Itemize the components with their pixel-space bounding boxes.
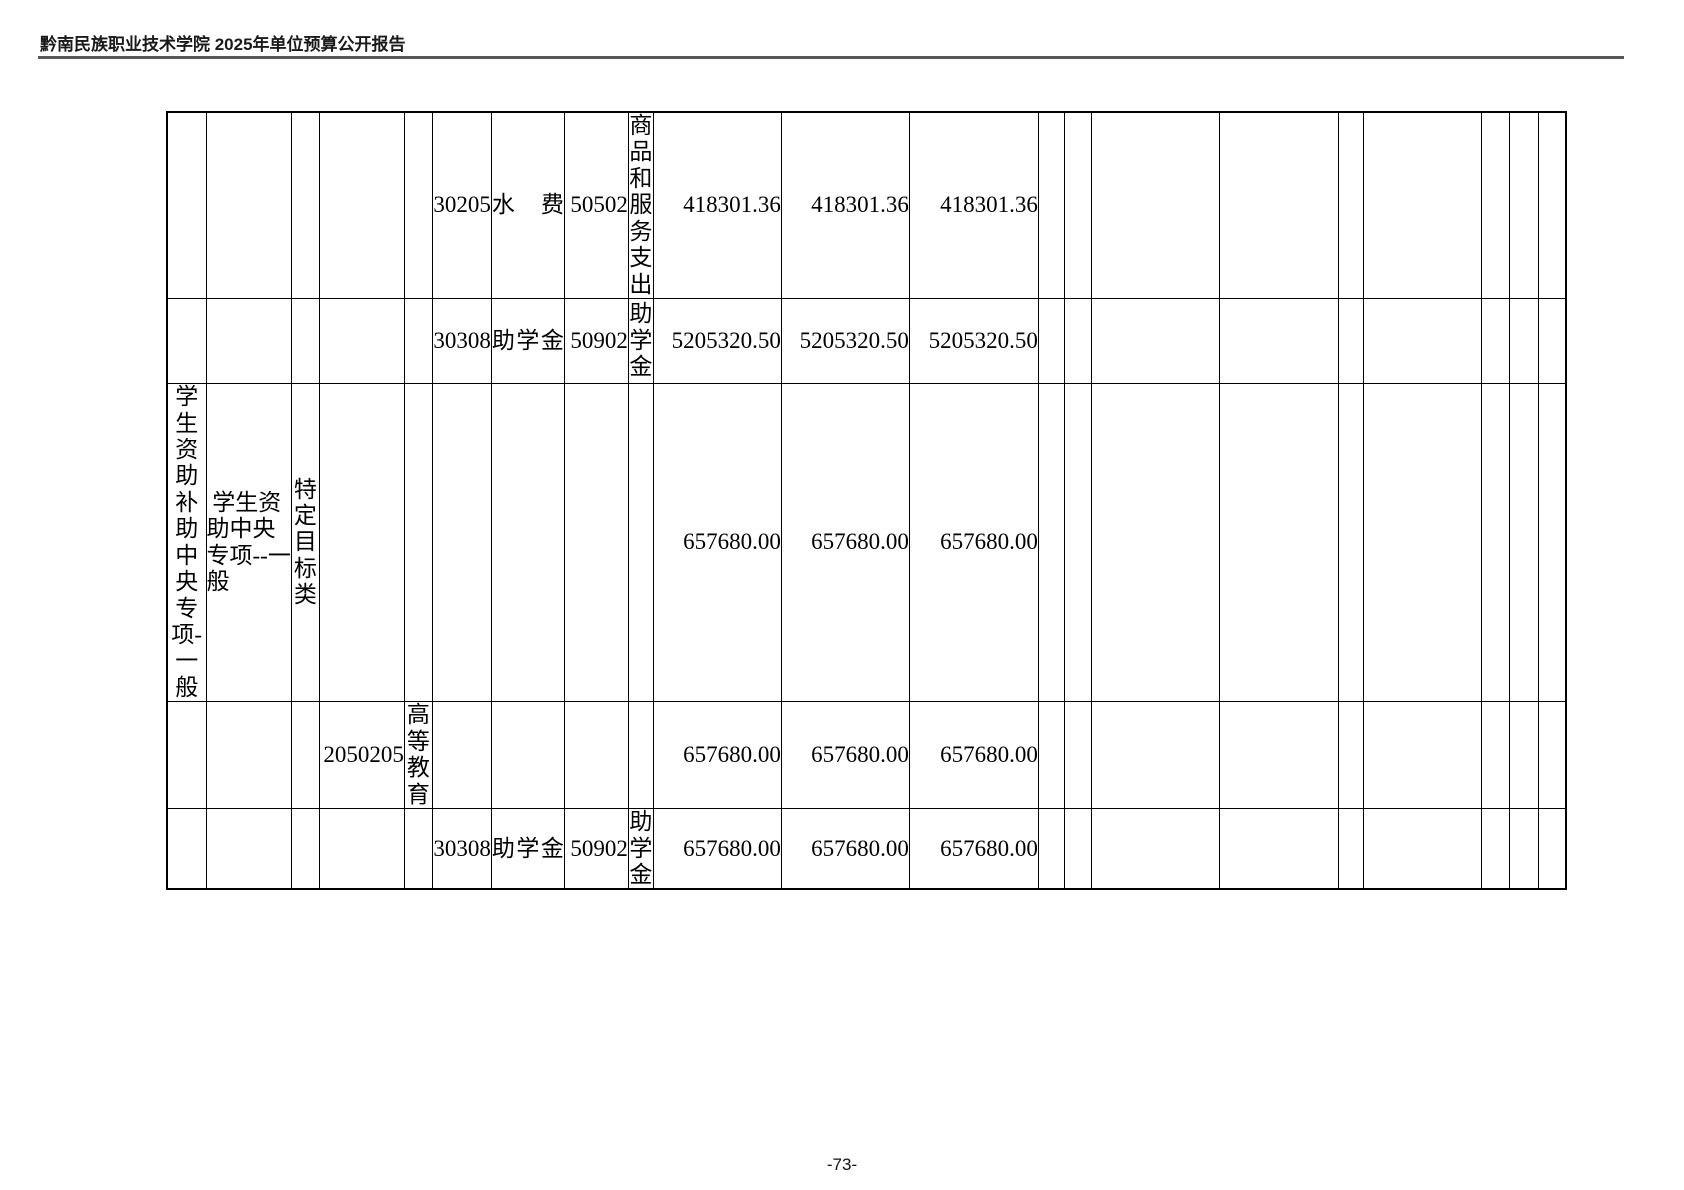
empty-cell <box>1064 299 1091 384</box>
empty-cell <box>1538 702 1566 809</box>
amount-cell: 657680.00 <box>909 702 1038 809</box>
empty-cell <box>1338 809 1363 890</box>
empty-cell <box>1038 299 1064 384</box>
empty-cell <box>1219 809 1338 890</box>
empty-cell <box>167 299 206 384</box>
gov-econ-class-code-cell: 50902 <box>564 299 628 384</box>
amount-cell: 657680.00 <box>653 384 781 702</box>
empty-cell <box>1363 384 1481 702</box>
empty-cell <box>1363 702 1481 809</box>
empty-cell <box>167 112 206 299</box>
empty-cell <box>1038 702 1064 809</box>
empty-cell <box>1363 112 1481 299</box>
amount-cell: 657680.00 <box>909 809 1038 890</box>
empty-cell <box>1091 702 1219 809</box>
empty-cell <box>564 384 628 702</box>
empty-cell <box>1538 384 1566 702</box>
table-row: 30308助学金50902助 学 金5205320.505205320.5052… <box>167 299 1566 384</box>
econ-class-name-cell: 助学金 <box>491 809 564 890</box>
empty-cell <box>404 809 432 890</box>
empty-cell <box>1219 112 1338 299</box>
empty-cell <box>1363 809 1481 890</box>
header-divider-rule <box>38 56 1624 59</box>
empty-cell <box>404 299 432 384</box>
econ-class-name-cell: 水费 <box>491 112 564 299</box>
empty-cell <box>291 702 319 809</box>
document-header-title: 黔南民族职业技术学院 2025年单位预算公开报告 <box>40 30 406 55</box>
empty-cell <box>1481 702 1509 809</box>
empty-cell <box>1091 112 1219 299</box>
table-row: 学 生 资 助 补 助 中 央 专 项- 一 般 学生资 助中央 专项--一 般… <box>167 384 1566 702</box>
amount-cell: 657680.00 <box>909 384 1038 702</box>
empty-cell <box>628 384 653 702</box>
amount-cell: 5205320.50 <box>781 299 909 384</box>
empty-cell <box>1219 299 1338 384</box>
amount-cell: 418301.36 <box>653 112 781 299</box>
empty-cell <box>1038 112 1064 299</box>
empty-cell <box>291 809 319 890</box>
empty-cell <box>1064 384 1091 702</box>
empty-cell <box>167 809 206 890</box>
empty-cell <box>319 299 404 384</box>
empty-cell <box>1509 112 1538 299</box>
amount-cell: 5205320.50 <box>653 299 781 384</box>
empty-cell <box>1538 112 1566 299</box>
project-name-cell: 学生资 助中央 专项--一 般 <box>206 384 291 702</box>
empty-cell <box>1481 384 1509 702</box>
amount-cell: 657680.00 <box>653 702 781 809</box>
empty-cell <box>1509 809 1538 890</box>
table-row: 30205水费50502商 品 和 服 务 支 出418301.36418301… <box>167 112 1566 299</box>
empty-cell <box>1064 112 1091 299</box>
empty-cell <box>1363 299 1481 384</box>
amount-cell: 418301.36 <box>781 112 909 299</box>
empty-cell <box>1091 809 1219 890</box>
empty-cell <box>1481 299 1509 384</box>
empty-cell <box>206 702 291 809</box>
empty-cell <box>1219 384 1338 702</box>
empty-cell <box>1338 112 1363 299</box>
empty-cell <box>1509 702 1538 809</box>
empty-cell <box>1509 384 1538 702</box>
table-row: 2050205高 等 教 育657680.00657680.00657680.0… <box>167 702 1566 809</box>
function-class-code-cell: 2050205 <box>319 702 404 809</box>
gov-econ-class-name-cell: 助 学 金 <box>628 809 653 890</box>
budget-detail-table: 30205水费50502商 品 和 服 务 支 出418301.36418301… <box>166 111 1567 890</box>
empty-cell <box>1509 299 1538 384</box>
empty-cell <box>432 702 491 809</box>
empty-cell <box>1538 299 1566 384</box>
project-type-cell: 特 定 目 标 类 <box>291 384 319 702</box>
amount-cell: 418301.36 <box>909 112 1038 299</box>
empty-cell <box>1338 702 1363 809</box>
empty-cell <box>1481 809 1509 890</box>
empty-cell <box>1338 384 1363 702</box>
empty-cell <box>432 384 491 702</box>
table-body: 30205水费50502商 品 和 服 务 支 出418301.36418301… <box>167 112 1566 889</box>
empty-cell <box>206 809 291 890</box>
empty-cell <box>291 112 319 299</box>
econ-class-code-cell: 30205 <box>432 112 491 299</box>
empty-cell <box>1064 809 1091 890</box>
empty-cell <box>1091 384 1219 702</box>
empty-cell <box>1038 809 1064 890</box>
empty-cell <box>291 299 319 384</box>
amount-cell: 657680.00 <box>653 809 781 890</box>
document-page: 黔南民族职业技术学院 2025年单位预算公开报告 30205水费50502商 品… <box>0 0 1684 1190</box>
empty-cell <box>564 702 628 809</box>
gov-econ-class-code-cell: 50902 <box>564 809 628 890</box>
empty-cell <box>206 299 291 384</box>
amount-cell: 657680.00 <box>781 809 909 890</box>
econ-class-code-cell: 30308 <box>432 809 491 890</box>
empty-cell <box>319 809 404 890</box>
empty-cell <box>319 384 404 702</box>
amount-cell: 657680.00 <box>781 384 909 702</box>
amount-cell: 657680.00 <box>781 702 909 809</box>
empty-cell <box>167 702 206 809</box>
empty-cell <box>1338 299 1363 384</box>
empty-cell <box>1538 809 1566 890</box>
empty-cell <box>1091 299 1219 384</box>
project-group-name-cell: 学 生 资 助 补 助 中 央 专 项- 一 般 <box>167 384 206 702</box>
gov-econ-class-code-cell: 50502 <box>564 112 628 299</box>
empty-cell <box>404 112 432 299</box>
empty-cell <box>206 112 291 299</box>
empty-cell <box>319 112 404 299</box>
empty-cell <box>1219 702 1338 809</box>
empty-cell <box>1481 112 1509 299</box>
amount-cell: 5205320.50 <box>909 299 1038 384</box>
page-number: -73- <box>0 1155 1684 1175</box>
empty-cell <box>628 702 653 809</box>
empty-cell <box>1064 702 1091 809</box>
gov-econ-class-name-cell: 商 品 和 服 务 支 出 <box>628 112 653 299</box>
empty-cell <box>491 384 564 702</box>
gov-econ-class-name-cell: 助 学 金 <box>628 299 653 384</box>
econ-class-code-cell: 30308 <box>432 299 491 384</box>
empty-cell <box>404 384 432 702</box>
function-class-name-cell: 高 等 教 育 <box>404 702 432 809</box>
econ-class-name-cell: 助学金 <box>491 299 564 384</box>
empty-cell <box>1038 384 1064 702</box>
table-row: 30308助学金50902助 学 金657680.00657680.006576… <box>167 809 1566 890</box>
empty-cell <box>491 702 564 809</box>
